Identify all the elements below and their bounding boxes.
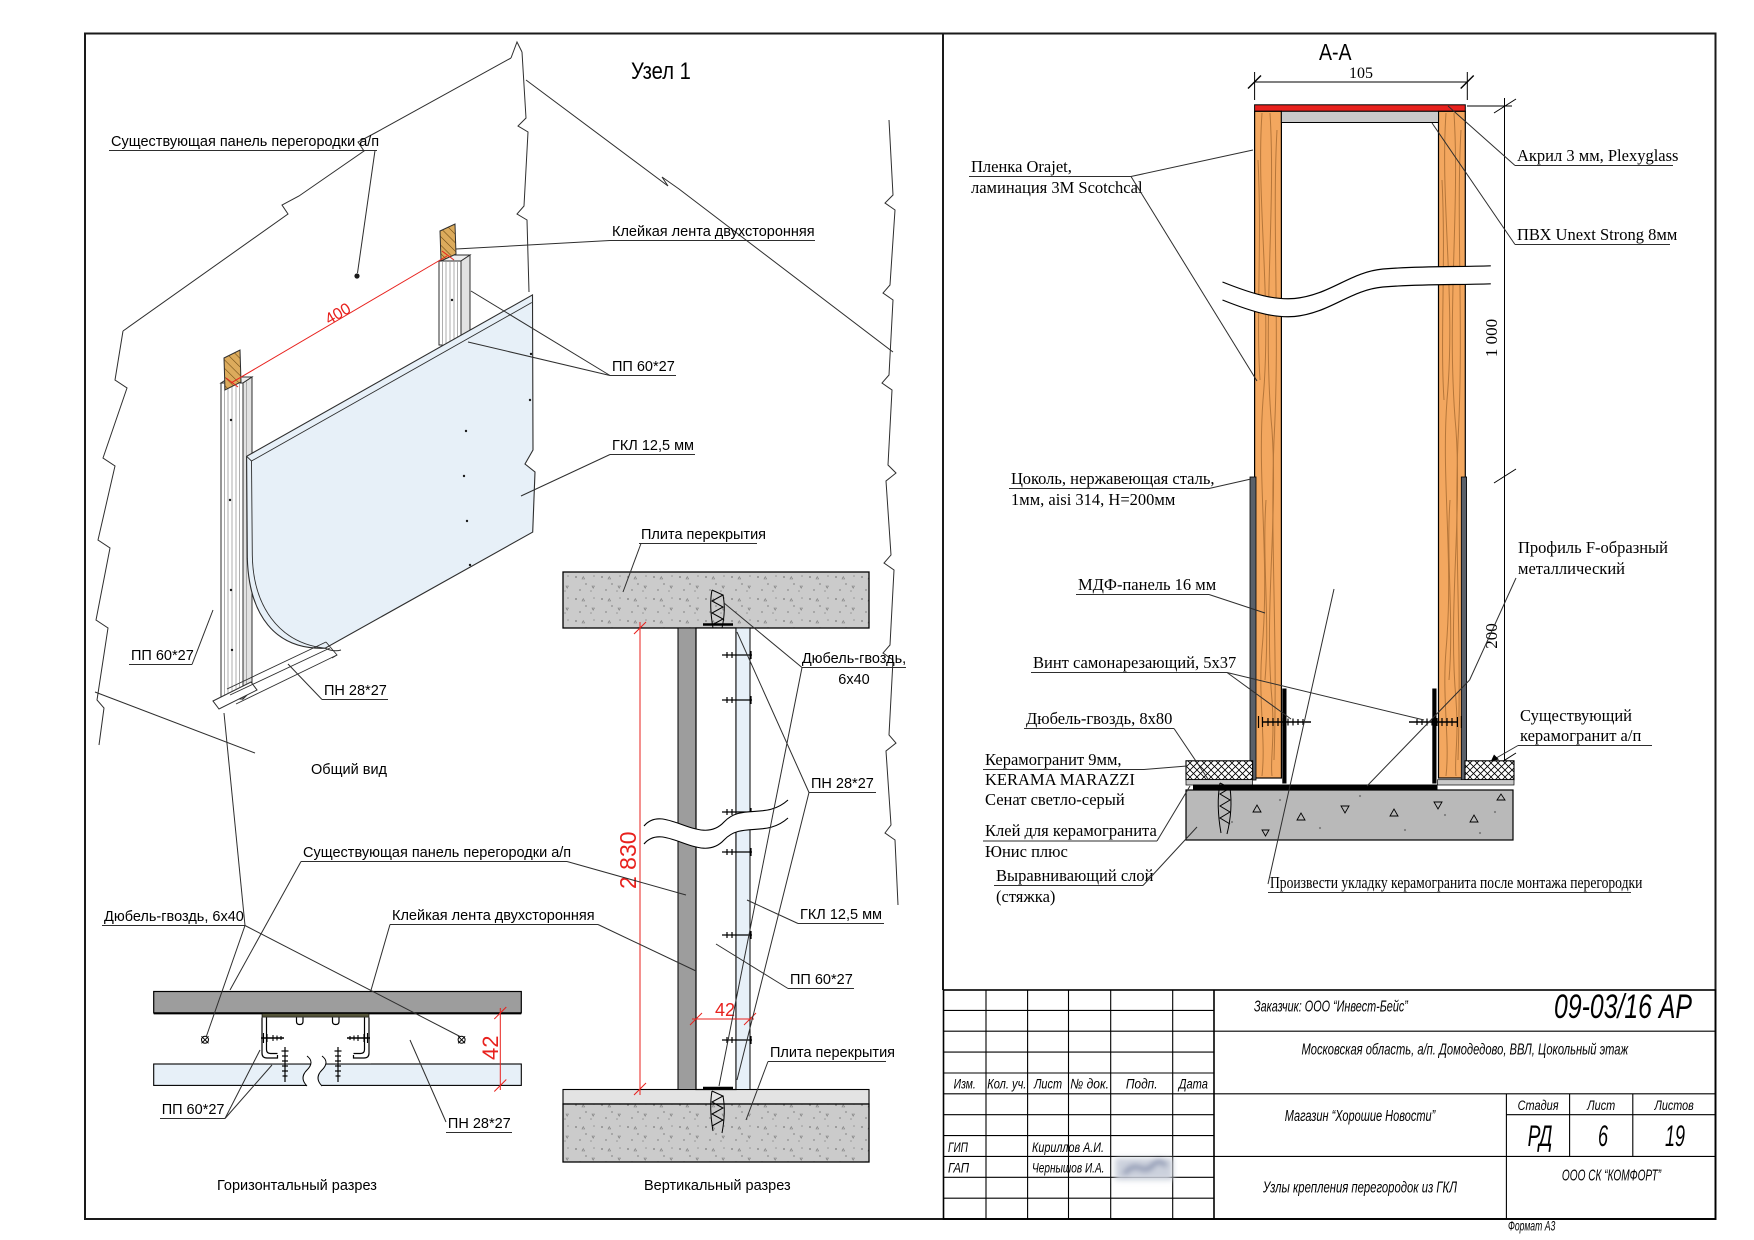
svg-text:2 830: 2 830 xyxy=(615,831,641,889)
svg-text:Заказчик: ООО “Инвест-Бейс”: Заказчик: ООО “Инвест-Бейс” xyxy=(1254,998,1408,1015)
svg-text:Узлы крепления перегородок из: Узлы крепления перегородок из ГКЛ xyxy=(1262,1179,1457,1196)
svg-text:Клейкая лента двухсторонняя: Клейкая лента двухсторонняя xyxy=(612,224,815,240)
svg-text:Юнис плюс: Юнис плюс xyxy=(985,842,1068,861)
svg-text:42: 42 xyxy=(478,1036,503,1060)
svg-text:Лист: Лист xyxy=(1586,1098,1615,1114)
svg-text:ПП 60*27: ПП 60*27 xyxy=(131,648,194,664)
svg-text:Изм.: Изм. xyxy=(954,1076,976,1092)
svg-text:ПВХ Unext Strong 8мм: ПВХ Unext Strong 8мм xyxy=(1517,225,1678,244)
svg-text:(стяжка): (стяжка) xyxy=(996,887,1055,906)
svg-text:Клейкая лента двухсторонняя: Клейкая лента двухсторонняя xyxy=(392,908,595,924)
svg-text:Московская область, а/п. Домод: Московская область, а/п. Домодедово, ВВЛ… xyxy=(1301,1041,1628,1058)
svg-text:ПП 60*27: ПП 60*27 xyxy=(790,972,853,988)
svg-text:Лист: Лист xyxy=(1033,1076,1062,1092)
svg-text:Профиль F-образный: Профиль F-образный xyxy=(1518,538,1668,557)
svg-text:ПН 28*27: ПН 28*27 xyxy=(811,776,874,792)
svg-text:200: 200 xyxy=(1482,623,1501,649)
svg-text:Узел 1: Узел 1 xyxy=(631,57,691,84)
svg-text:ГКЛ 12,5 мм: ГКЛ 12,5 мм xyxy=(800,907,882,923)
svg-text:МДФ-панель 16 мм: МДФ-панель 16 мм xyxy=(1078,575,1217,594)
svg-text:Плита перекрытия: Плита перекрытия xyxy=(641,527,766,543)
svg-text:Акрил 3 мм, Plexyglass: Акрил 3 мм, Plexyglass xyxy=(1517,146,1678,165)
svg-text:ПП 60*27: ПП 60*27 xyxy=(612,359,675,375)
svg-text:Горизонтальный разрез: Горизонтальный разрез xyxy=(217,1178,377,1194)
svg-text:Дюбель-гвоздь, 8х80: Дюбель-гвоздь, 8х80 xyxy=(1026,709,1172,728)
svg-text:ПН 28*27: ПН 28*27 xyxy=(448,1116,511,1132)
svg-text:Формат А3: Формат А3 xyxy=(1508,1220,1556,1234)
svg-text:Выравнивающий слой: Выравнивающий слой xyxy=(996,866,1154,885)
svg-text:Кол. уч.: Кол. уч. xyxy=(987,1076,1026,1092)
svg-text:Пленка Orajet,: Пленка Orajet, xyxy=(971,157,1072,176)
svg-text:ГИП: ГИП xyxy=(948,1139,968,1155)
svg-text:Магазин “Хорошие Новости”: Магазин “Хорошие Новости” xyxy=(1285,1107,1436,1124)
svg-text:Клей для керамогранита: Клей для керамогранита xyxy=(985,821,1157,840)
svg-text:105: 105 xyxy=(1349,65,1373,82)
svg-text:Произвести укладку керамограни: Произвести укладку керамогранита после м… xyxy=(1270,874,1642,893)
svg-text:Дата: Дата xyxy=(1177,1076,1208,1092)
svg-text:1 000: 1 000 xyxy=(1482,319,1501,357)
svg-text:Чернышов И.А.: Чернышов И.А. xyxy=(1032,1160,1104,1176)
svg-text:Цоколь, нержавеющая сталь,: Цоколь, нержавеющая сталь, xyxy=(1011,469,1214,488)
svg-text:Общий вид: Общий вид xyxy=(311,762,388,778)
svg-text:керамогранит а/п: керамогранит а/п xyxy=(1520,726,1641,745)
svg-text:Вертикальный разрез: Вертикальный разрез xyxy=(644,1178,791,1194)
svg-text:ламинация 3М Scotchcal: ламинация 3М Scotchcal xyxy=(971,178,1143,197)
svg-text:Дюбель-гвоздь, 6х40: Дюбель-гвоздь, 6х40 xyxy=(104,909,244,925)
svg-text:09-03/16 АР: 09-03/16 АР xyxy=(1554,988,1692,1026)
svg-text:ПН 28*27: ПН 28*27 xyxy=(324,683,387,699)
svg-text:19: 19 xyxy=(1665,1121,1685,1154)
svg-text:Керамогранит 9мм,: Керамогранит 9мм, xyxy=(985,750,1122,769)
svg-text:Дюбель-гвоздь,: Дюбель-гвоздь, xyxy=(802,651,906,667)
svg-text:42: 42 xyxy=(715,1000,735,1020)
svg-text:ПП 60*27: ПП 60*27 xyxy=(162,1102,225,1118)
svg-text:6: 6 xyxy=(1598,1121,1608,1154)
svg-text:6х40: 6х40 xyxy=(838,672,869,688)
svg-text:РД: РД xyxy=(1528,1120,1553,1153)
svg-text:1мм, aisi 314, Н=200мм: 1мм, aisi 314, Н=200мм xyxy=(1011,490,1176,509)
svg-text:Кириллов А.И.: Кириллов А.И. xyxy=(1032,1139,1104,1155)
svg-text:№ док.: № док. xyxy=(1070,1076,1109,1092)
svg-text:ООО СК “КОМФОРТ”: ООО СК “КОМФОРТ” xyxy=(1562,1166,1662,1184)
svg-text:Существующая панель перегородк: Существующая панель перегородки а/п xyxy=(303,845,571,861)
svg-text:Существующая панель перегородк: Существующая панель перегородки а/п xyxy=(111,134,379,150)
svg-text:Стадия: Стадия xyxy=(1518,1098,1559,1114)
svg-text:Сенат светло-серый: Сенат светло-серый xyxy=(985,790,1125,809)
svg-text:А-А: А-А xyxy=(1319,40,1352,66)
svg-text:Винт самонарезающий, 5х37: Винт самонарезающий, 5х37 xyxy=(1033,653,1236,672)
svg-text:KERAMA MARAZZI: KERAMA MARAZZI xyxy=(985,770,1135,789)
svg-text:Плита перекрытия: Плита перекрытия xyxy=(770,1045,895,1061)
svg-text:ГКЛ 12,5 мм: ГКЛ 12,5 мм xyxy=(612,438,694,454)
svg-text:400: 400 xyxy=(322,300,354,328)
svg-text:металлический: металлический xyxy=(1518,559,1625,578)
svg-text:Подп.: Подп. xyxy=(1126,1076,1158,1092)
svg-text:Существующий: Существующий xyxy=(1520,706,1632,725)
svg-text:Листов: Листов xyxy=(1654,1098,1695,1114)
svg-text:ГАП: ГАП xyxy=(948,1159,970,1175)
